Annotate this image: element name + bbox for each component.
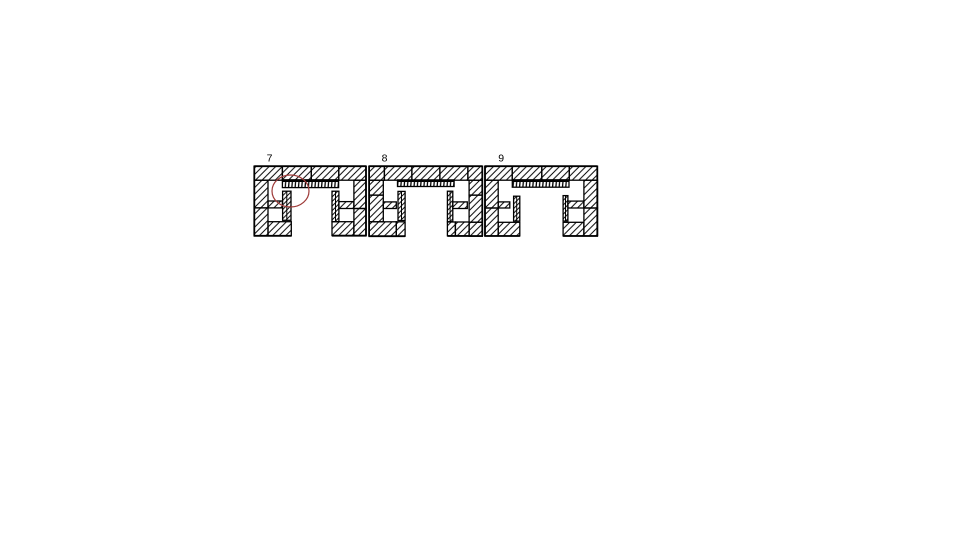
svg-text:8: 8 [382,153,388,165]
svg-text:7: 7 [267,153,273,165]
svg-text:9: 9 [498,153,504,165]
